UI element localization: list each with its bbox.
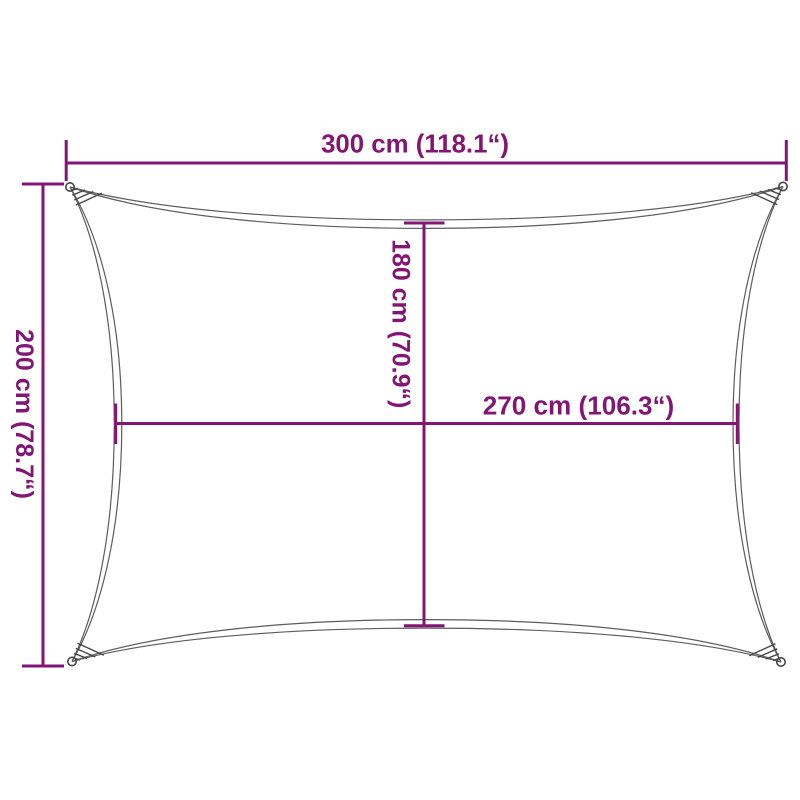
- svg-text:200 cm (78.7“): 200 cm (78.7“): [10, 329, 38, 499]
- svg-text:300 cm (118.1“): 300 cm (118.1“): [321, 131, 509, 159]
- svg-text:180 cm (70.9“): 180 cm (70.9“): [387, 239, 415, 408]
- svg-text:270 cm (106.3“): 270 cm (106.3“): [483, 391, 674, 421]
